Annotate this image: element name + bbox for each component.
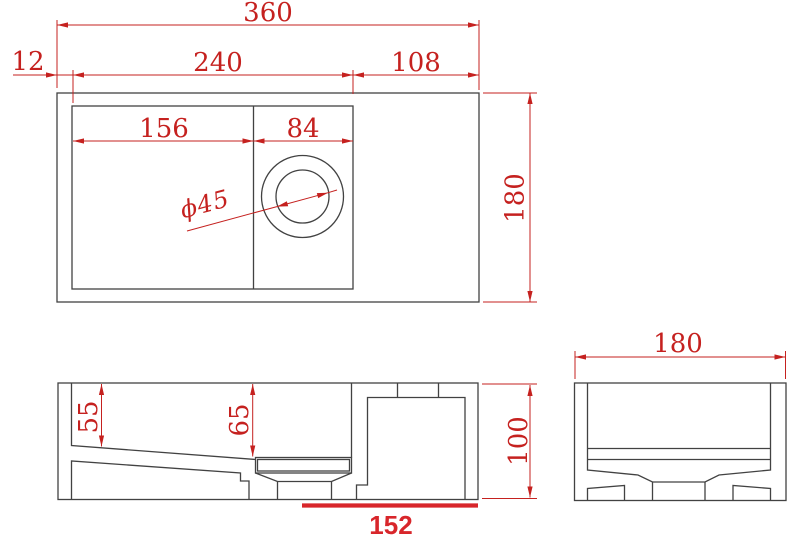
plan-outer-outline — [57, 93, 479, 302]
dim-label-basin-right: 84 — [286, 114, 319, 144]
dim-label-bottom-span: 152 — [369, 510, 412, 540]
dim-label-mid-depth: 65 — [225, 403, 255, 436]
deck-cavity-recess — [357, 398, 466, 500]
side-dimensions: 180 — [575, 329, 786, 379]
dim-label-hole-diameter: ϕ45 — [177, 184, 232, 224]
diameter-dim-line — [277, 193, 328, 207]
front-floor-underside-step — [72, 461, 250, 500]
drain-hole-outer-circle — [262, 156, 344, 238]
side-left-foot-recess — [588, 486, 625, 501]
dim-label-overall-width: 360 — [243, 0, 293, 28]
technical-drawing-canvas: 360 12 240 108 156 84 180 ϕ45 — [0, 0, 800, 543]
dim-label-right-deck: 108 — [391, 48, 441, 78]
dim-label-plan-depth: 180 — [501, 173, 531, 223]
dim-label-side-width: 180 — [653, 329, 703, 359]
plan-dimensions: 360 12 240 108 156 84 180 ϕ45 — [11, 0, 537, 302]
plan-view — [57, 93, 479, 302]
diameter-leader-tail — [328, 190, 337, 193]
drain-funnel — [256, 473, 352, 482]
dim-label-left-wall: 12 — [11, 47, 44, 77]
front-outer-outline — [58, 383, 478, 500]
side-inner-walls-and-floor — [588, 383, 771, 482]
basin-three-view-drawing: 360 12 240 108 156 84 180 ϕ45 — [0, 0, 800, 543]
dim-label-left-depth: 55 — [74, 400, 104, 433]
side-section-view — [575, 383, 787, 501]
dim-label-basin-span: 240 — [193, 48, 243, 78]
dim-label-height: 100 — [504, 416, 534, 466]
drain-hole-inner-circle — [276, 170, 329, 223]
side-outer-outline — [575, 383, 787, 501]
front-dimensions: 55 65 100 152 — [74, 384, 537, 540]
drain-flange-inner — [258, 460, 350, 472]
front-section-view — [58, 383, 478, 500]
dim-label-basin-left: 156 — [139, 114, 189, 144]
side-right-foot-recess — [733, 486, 771, 501]
